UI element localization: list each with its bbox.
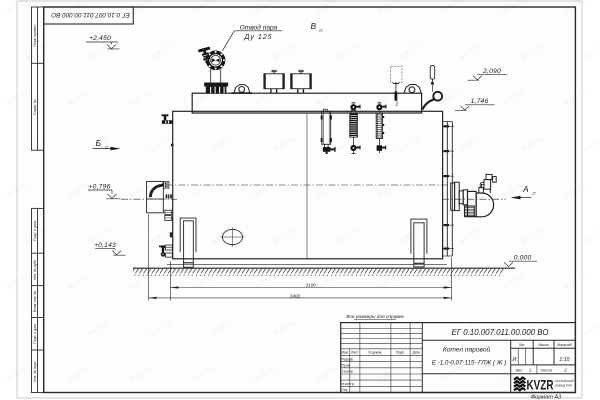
svg-text:+0,796: +0,796 [89,183,111,190]
svg-text:Отвод пара: Отвод пара [240,23,278,31]
svg-text:В: В [311,21,317,31]
svg-text:1: 1 [395,102,398,108]
svg-text:Лист: Лист [515,369,523,373]
svg-text:+2,450: +2,450 [89,35,111,42]
svg-text:Котел паровой: Котел паровой [443,346,491,354]
svg-text:2,090: 2,090 [482,68,501,75]
svg-text:Листов: Листов [541,369,552,373]
svg-text:0,000: 0,000 [514,255,532,262]
svg-text:Инв. № подл.: Инв. № подл. [33,361,37,382]
svg-text:Формат А3: Формат А3 [531,394,562,400]
svg-text:+0,143: +0,143 [94,242,116,249]
svg-text:Перв. примен.: Перв. примен. [33,24,37,47]
svg-text:1: 1 [529,368,531,373]
svg-text:Подп. и дата: Подп. и дата [33,221,37,241]
svg-text:Масса: Масса [538,343,548,347]
svg-text:Разраб.: Разраб. [342,357,354,361]
svg-text:Инв. № дубл.: Инв. № дубл. [33,259,37,280]
svg-text:Пров.: Пров. [342,364,351,368]
svg-text:Лист: Лист [351,351,359,355]
svg-text:Утв.: Утв. [342,388,349,392]
svg-text:Лит.: Лит. [519,343,525,347]
svg-text:Все размеры для справок: Все размеры для справок [346,314,404,320]
svg-text:Масштаб: Масштаб [557,343,572,347]
svg-text:Б: Б [96,138,102,148]
svg-text:(2: (2 [320,29,323,33]
svg-text:ЕГ 0.10.007.011.00.000 ВО: ЕГ 0.10.007.011.00.000 ВО [51,11,130,18]
svg-text:Подп. и дата: Подп. и дата [33,324,37,344]
svg-text:КОТЕЛЬНЫЙ: КОТЕЛЬНЫЙ [555,379,574,383]
svg-text:N докум.: N докум. [369,351,383,355]
svg-text:3100: 3100 [306,282,317,287]
svg-text:3400: 3400 [290,293,301,298]
svg-text:Н.контр.: Н.контр. [342,382,355,386]
svg-text:Изм.: Изм. [342,351,349,355]
svg-text:Справ. №: Справ. № [33,99,37,115]
svg-text:Дата: Дата [412,351,420,355]
svg-text:Е -1,0-0,07-115- ГЛЖ ( Ж ): Е -1,0-0,07-115- ГЛЖ ( Ж ) [432,359,506,366]
svg-text:А: А [522,184,529,194]
svg-text:ЗАВОД РЭП: ЗАВОД РЭП [555,384,572,388]
svg-text:Взам. инв. №: Взам. инв. № [33,291,37,312]
svg-text:KVZR: KVZR [527,377,554,392]
svg-text:И: И [512,357,516,363]
svg-text:Т.контр.: Т.контр. [342,370,354,374]
svg-text:ЕГ 0.10.007.011.00.000 ВО: ЕГ 0.10.007.011.00.000 ВО [452,328,549,337]
svg-text:(2: (2 [533,192,536,196]
svg-text:Подп.: Подп. [396,351,405,355]
svg-text:1:15: 1:15 [559,357,570,363]
svg-text:1,746: 1,746 [471,98,489,105]
svg-text:Ду 125: Ду 125 [243,34,272,41]
